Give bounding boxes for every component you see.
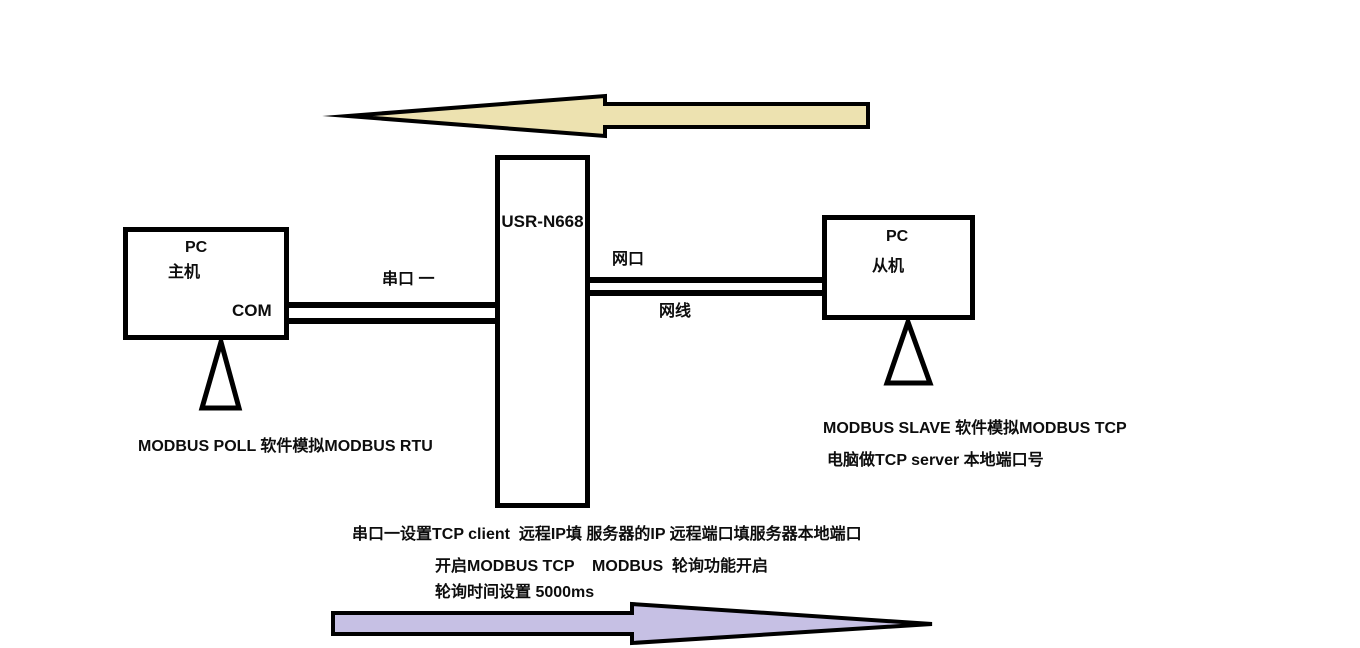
left-modbus-poll-note: MODBUS POLL 软件模拟MODBUS RTU (138, 438, 433, 456)
left-pc-role-label: 主机 (168, 264, 200, 282)
bottom-right-arrow (333, 604, 932, 643)
right-modbus-slave-note-line1: MODBUS SLAVE 软件模拟MODBUS TCP (823, 420, 1127, 438)
usr-n668-label: USR-N668 (495, 212, 590, 232)
bottom-config-note-line2: 开启MODBUS TCP MODBUS 轮询功能开启 (435, 558, 768, 576)
lan-port-label: 网口 (612, 251, 644, 269)
right-pc-pointer-triangle (887, 322, 930, 383)
left-pc-pointer-triangle (202, 342, 239, 408)
right-pc-title: PC (886, 228, 908, 246)
bottom-config-note-line1: 串口一设置TCP client 远程IP填 服务器的IP 远程端口填服务器本地端… (352, 526, 862, 544)
lan-cable-label: 网线 (659, 303, 691, 321)
modbus-topology-diagram: USR-N668 PC 主机 COM PC 从机 串口 一 网口 网线 MODB… (0, 0, 1360, 648)
right-modbus-slave-note-line2: 电脑做TCP server 本地端口号 (827, 452, 1044, 470)
left-pc-com-port-label: COM (232, 301, 272, 321)
lan-cable-line (590, 277, 822, 296)
serial-link-label: 串口 一 (382, 271, 434, 289)
bottom-config-note-line3: 轮询时间设置 5000ms (435, 584, 594, 602)
serial-cable-line (289, 302, 495, 324)
left-pc-title: PC (185, 239, 207, 257)
usr-n668-device-box (495, 155, 590, 508)
top-left-arrow (348, 96, 868, 136)
right-pc-role-label: 从机 (872, 258, 904, 276)
